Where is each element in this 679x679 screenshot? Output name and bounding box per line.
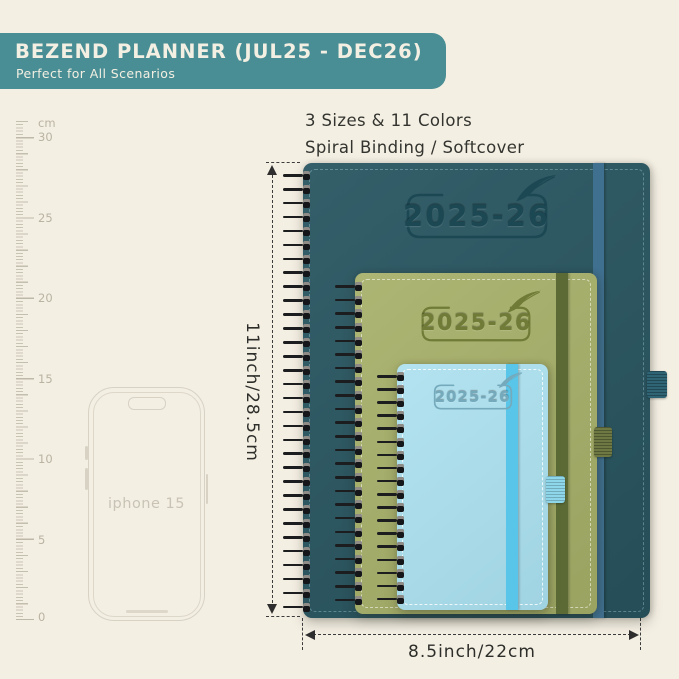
year-text: 2025-26 <box>418 303 534 345</box>
spiral-coil <box>335 514 363 523</box>
spiral-coil <box>377 595 405 604</box>
spiral-coil <box>283 505 311 514</box>
spiral-coil <box>335 391 363 400</box>
spiral-coil <box>283 449 311 458</box>
spiral-coil <box>283 477 311 486</box>
pen-loop <box>647 371 667 398</box>
product-title: BEZEND PLANNER (JUL25 - DEC26) <box>15 40 446 64</box>
spiral-coil <box>283 241 311 250</box>
phone-side-button <box>206 474 209 504</box>
feature-line-sizes: 3 Sizes & 11 Colors <box>305 107 524 134</box>
width-dim-cap-right <box>640 618 641 650</box>
spiral-coil <box>335 350 363 359</box>
spiral-coil <box>335 568 363 577</box>
size-ruler: cm 30 25 20 15 10 5 0 <box>16 110 86 630</box>
dynamic-island <box>128 397 166 410</box>
spiral-coil <box>283 324 311 333</box>
planner-small: 2025-26 <box>397 364 548 610</box>
spiral-coil <box>377 451 405 460</box>
spiral-coil <box>335 296 363 305</box>
height-dim-line <box>272 170 273 608</box>
spiral-coil <box>377 477 405 486</box>
elastic-band <box>556 273 568 614</box>
spiral-coil <box>377 582 405 591</box>
spiral-coil <box>283 603 311 612</box>
spiral-coil <box>335 555 363 564</box>
spiral-coil <box>283 213 311 222</box>
phone-home-bar <box>126 610 168 614</box>
height-dim-cap-bottom <box>266 616 300 617</box>
ruler-unit-label: cm <box>38 116 68 130</box>
spiral-coil <box>377 464 405 473</box>
spiral-coil <box>335 596 363 605</box>
phone-side-button <box>85 446 88 460</box>
spiral-coil <box>283 380 311 389</box>
spiral-coil <box>283 547 311 556</box>
year-emboss: 2025-26 <box>429 382 517 412</box>
spiral-coil <box>283 519 311 528</box>
spiral-coil <box>283 589 311 598</box>
product-subtitle: Perfect for All Scenarios <box>16 66 446 81</box>
spiral-coil <box>283 310 311 319</box>
year-emboss: 2025-26 <box>402 189 552 243</box>
spiral-coil <box>283 561 311 570</box>
arrow-left-icon <box>305 630 315 640</box>
spiral-coil <box>335 418 363 427</box>
spiral-coil <box>283 422 311 431</box>
spiral-coil <box>335 473 363 482</box>
phone-label: iphone 15 <box>89 496 204 512</box>
spiral-coil <box>283 575 311 584</box>
feature-text: 3 Sizes & 11 Colors Spiral Binding / Sof… <box>305 107 524 161</box>
height-dim-cap-top <box>266 162 300 163</box>
spiral-coil <box>377 569 405 578</box>
spiral-coil <box>377 438 405 447</box>
spiral-coil <box>377 385 405 394</box>
spiral-coil <box>377 516 405 525</box>
spiral-coil <box>335 446 363 455</box>
spiral-coil <box>335 337 363 346</box>
height-dimension-label: 11inch/28.5cm <box>242 308 262 476</box>
year-text: 2025-26 <box>402 189 552 243</box>
width-dim-cap-left <box>302 618 303 650</box>
arrow-up-icon <box>267 165 277 175</box>
spiral-binding <box>283 171 311 612</box>
spiral-coil <box>283 199 311 208</box>
spiral-coil <box>283 394 311 403</box>
spiral-coil <box>335 500 363 509</box>
spiral-coil <box>335 377 363 386</box>
product-image: BEZEND PLANNER (JUL25 - DEC26) Perfect f… <box>0 0 679 679</box>
spiral-coil <box>377 556 405 565</box>
year-text: 2025-26 <box>429 382 517 412</box>
spiral-coil <box>283 338 311 347</box>
spiral-coil <box>283 366 311 375</box>
phone-side-button <box>85 468 88 490</box>
spiral-coil <box>283 463 311 472</box>
spiral-coil <box>335 528 363 537</box>
spiral-coil <box>335 459 363 468</box>
year-emboss: 2025-26 <box>418 303 534 345</box>
spiral-coil <box>335 309 363 318</box>
spiral-coil <box>335 323 363 332</box>
spiral-binding <box>335 282 363 605</box>
spiral-coil <box>377 503 405 512</box>
spiral-coil <box>283 227 311 236</box>
spiral-coil <box>377 490 405 499</box>
spiral-coil <box>377 542 405 551</box>
width-dimension-label: 8.5inch/22cm <box>382 642 562 662</box>
ruler-label-5: 5 <box>38 533 68 547</box>
spiral-coil <box>283 171 311 180</box>
spiral-coil <box>335 405 363 414</box>
spiral-coil <box>283 282 311 291</box>
spiral-coil <box>335 282 363 291</box>
spiral-coil <box>335 364 363 373</box>
pen-loop <box>594 427 612 457</box>
ruler-label-15: 15 <box>38 372 68 386</box>
arrow-right-icon <box>629 630 639 640</box>
spiral-coil <box>283 352 311 361</box>
pen-loop <box>546 476 565 503</box>
spiral-coil <box>283 408 311 417</box>
spiral-coil <box>335 487 363 496</box>
width-dim-line <box>313 634 631 635</box>
spiral-coil <box>283 255 311 264</box>
feature-line-binding: Spiral Binding / Softcover <box>305 134 524 161</box>
spiral-coil <box>283 436 311 445</box>
ruler-label-10: 10 <box>38 452 68 466</box>
spiral-coil <box>377 398 405 407</box>
spiral-coil <box>335 432 363 441</box>
phone-size-reference: iphone 15 <box>88 387 205 621</box>
ruler-label-0: 0 <box>38 610 68 624</box>
spiral-coil <box>335 582 363 591</box>
ruler-label-25: 25 <box>38 211 68 225</box>
spiral-coil <box>283 185 311 194</box>
spiral-coil <box>335 541 363 550</box>
spiral-coil <box>283 296 311 305</box>
spiral-binding <box>377 372 405 604</box>
header-banner: BEZEND PLANNER (JUL25 - DEC26) Perfect f… <box>0 33 446 89</box>
spiral-coil <box>377 372 405 381</box>
spiral-coil <box>377 529 405 538</box>
ruler-label-30: 30 <box>38 130 68 144</box>
spiral-coil <box>283 491 311 500</box>
spiral-coil <box>377 411 405 420</box>
spiral-coil <box>283 533 311 542</box>
spiral-coil <box>377 424 405 433</box>
spiral-coil <box>283 268 311 277</box>
arrow-down-icon <box>267 604 277 614</box>
ruler-ticks-major <box>16 137 34 620</box>
ruler-label-20: 20 <box>38 291 68 305</box>
